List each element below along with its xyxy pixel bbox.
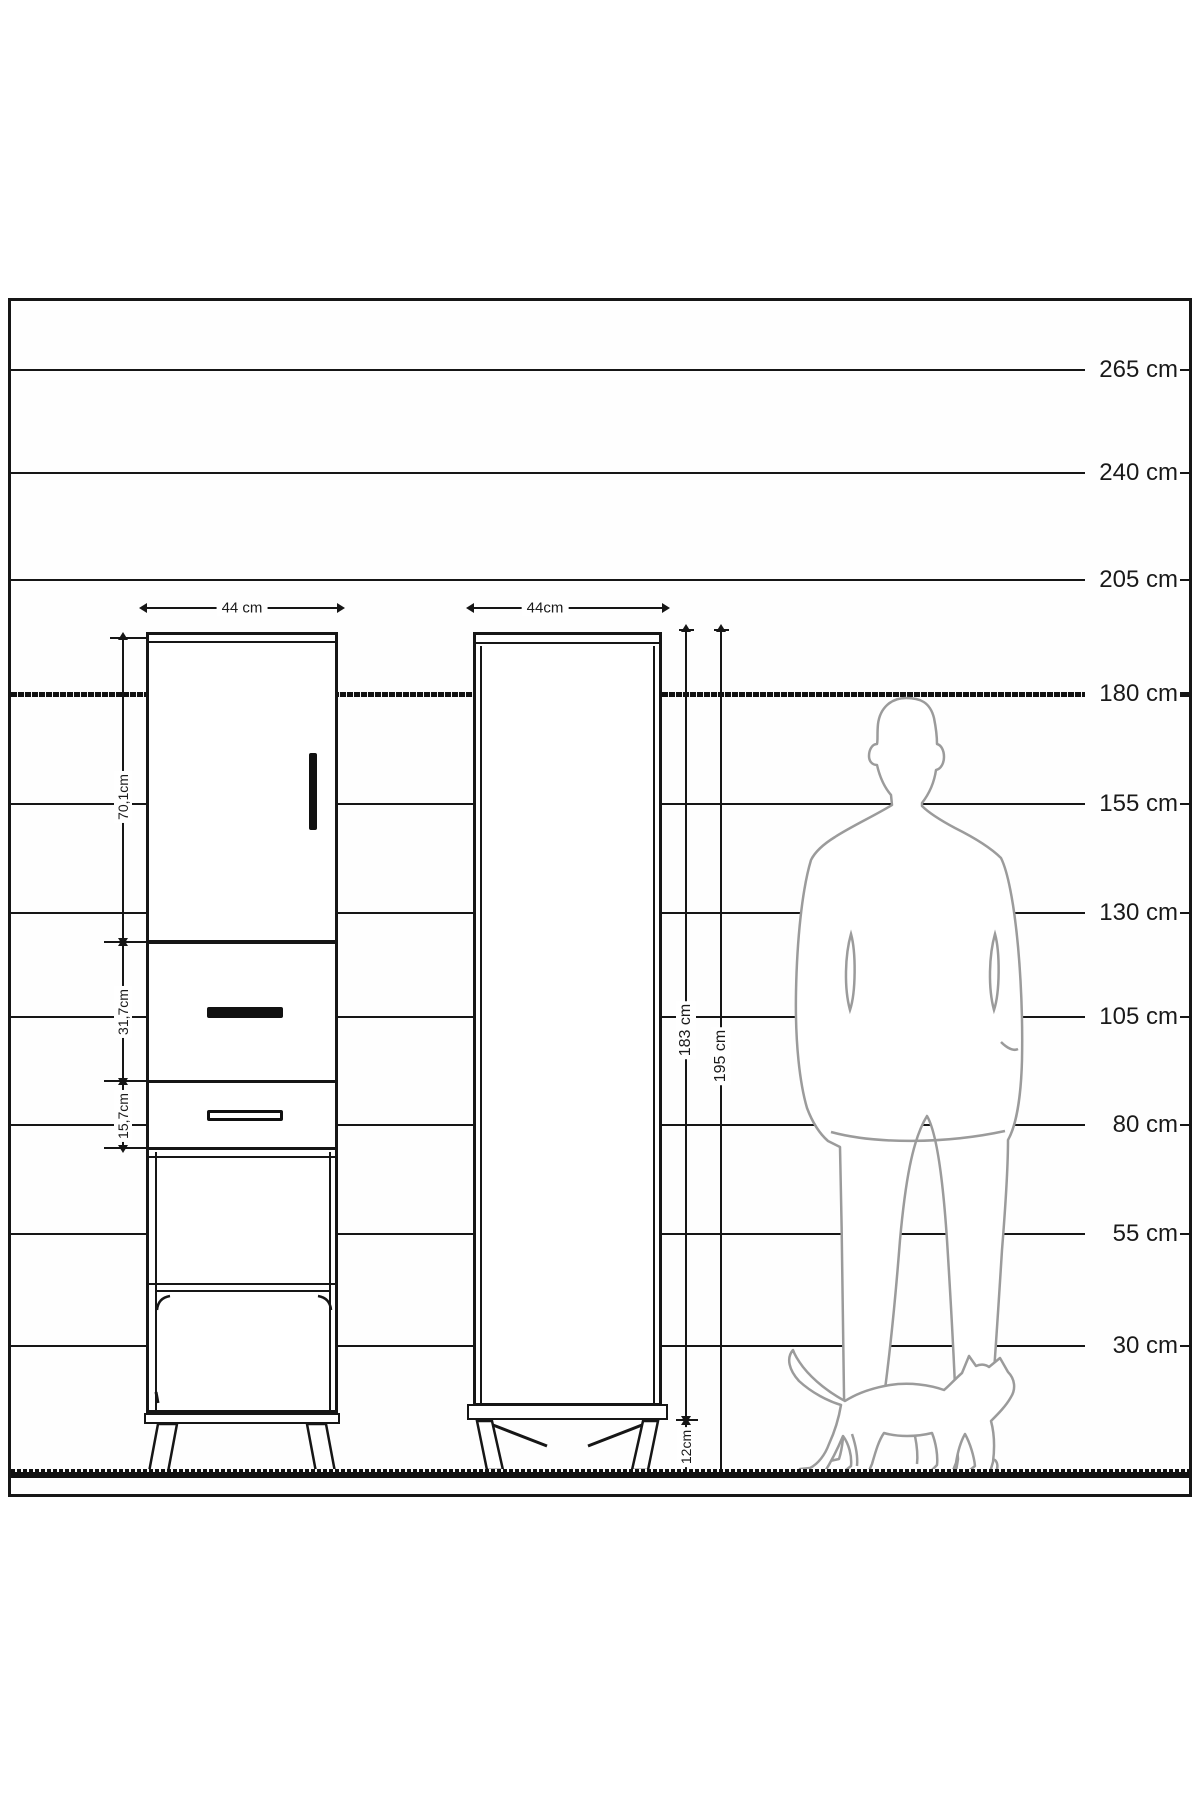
scale-line-stub-155-cm (1180, 803, 1189, 805)
left-cabinet-door-handle (309, 753, 317, 830)
scale-line-stub-130-cm (1180, 912, 1189, 914)
scale-label-205-cm: 205 cm (1086, 567, 1178, 593)
right-cabinet-top-board-line (476, 642, 659, 644)
scale-line-265-cm (11, 369, 1085, 371)
scale-line-stub-205-cm (1180, 579, 1189, 581)
scale-label-240-cm: 240 cm (1086, 460, 1178, 486)
scale-line-stub-30-cm (1180, 1345, 1189, 1347)
left-cabinet-drawer2-bottom-line (149, 1147, 335, 1150)
scale-label-80-cm: 80 cm (1086, 1112, 1178, 1138)
left-cabinet-shelf-board-bottom (155, 1290, 331, 1292)
scale-line-stub-55-cm (1180, 1233, 1189, 1235)
left-cabinet-drawer2-handle (207, 1110, 283, 1121)
left-dim-drawer1-height-label: 31,7cm (114, 986, 132, 1038)
scale-label-130-cm: 130 cm (1086, 900, 1178, 926)
scale-line-stub-105-cm (1180, 1016, 1189, 1018)
scale-label-155-cm: 155 cm (1086, 791, 1178, 817)
scale-line-240-cm (11, 472, 1085, 474)
scale-label-180-cm: 180 cm (1086, 681, 1178, 707)
scale-line-stub-180-cm (1180, 692, 1189, 697)
scale-line-205-cm (11, 579, 1085, 581)
scale-label-55-cm: 55 cm (1086, 1221, 1178, 1247)
left-cabinet-shelf-top-line (149, 1156, 335, 1158)
left-cabinet-bottom-board (144, 1413, 340, 1424)
left-cabinet-door-bottom-line (149, 940, 335, 944)
right-dim-leg-height-label: 12cm (677, 1427, 695, 1467)
left-cabinet-top-board-line (149, 641, 335, 643)
scale-line-stub-240-cm (1180, 472, 1189, 474)
furniture-dimension-diagram: 265 cm240 cm205 cm180 cm155 cm130 cm105 … (0, 0, 1200, 1800)
left-cabinet-drawer-divider (149, 1080, 335, 1083)
right-dim-body-height-label: 183 cm (676, 1001, 696, 1059)
scale-label-30-cm: 30 cm (1086, 1333, 1178, 1359)
right-dim-total-height-label: 195 cm (711, 1027, 731, 1085)
left-dim-tick-top (110, 637, 146, 639)
floor-line (11, 1472, 1189, 1478)
left-cabinet-width-label: 44 cm (217, 600, 268, 617)
scale-line-stub-265-cm (1180, 369, 1189, 371)
left-cabinet-body (146, 632, 338, 1413)
scale-line-stub-80-cm (1180, 1124, 1189, 1126)
right-cabinet-width-label: 44cm (522, 600, 569, 617)
right-cabinet-door-edge-left (480, 646, 482, 1404)
scale-label-105-cm: 105 cm (1086, 1004, 1178, 1030)
left-dim-drawer2-height-label: 15,7cm (114, 1090, 132, 1142)
left-dim-tick-drawer2-bottom (104, 1147, 146, 1149)
right-cabinet-door-edge-right (653, 646, 655, 1404)
left-cabinet-drawer1-handle (207, 1007, 283, 1018)
right-cabinet-bottom-board (467, 1404, 668, 1420)
left-cabinet-shelf-board-top (149, 1283, 335, 1285)
right-cabinet-body (473, 632, 662, 1406)
scale-label-265-cm: 265 cm (1086, 357, 1178, 383)
left-dim-door-height-label: 70,1cm (114, 771, 132, 823)
